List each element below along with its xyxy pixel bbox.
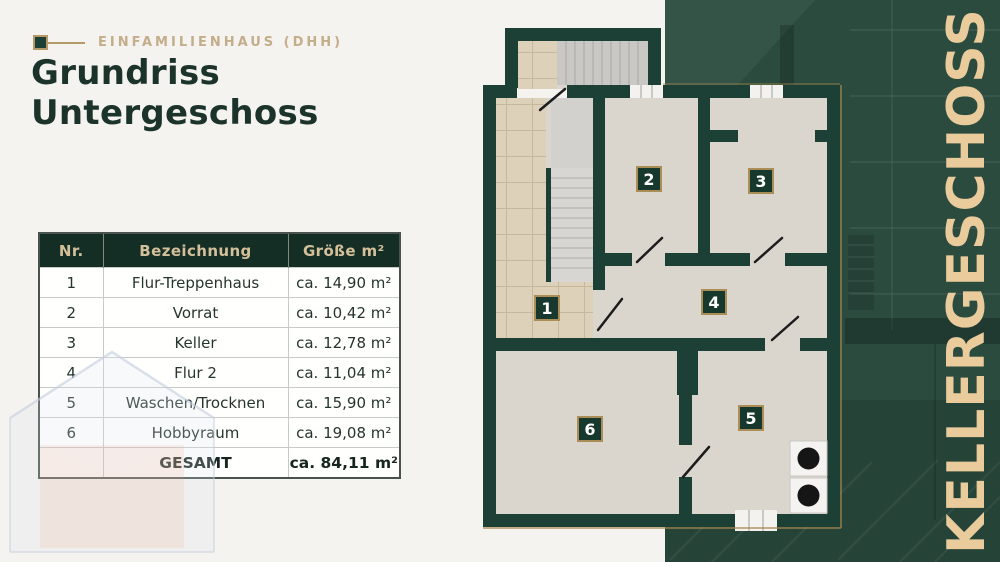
floor-plan	[480, 0, 1000, 562]
cell-nr: 5	[39, 388, 103, 418]
cell-name: Waschen/Trocknen	[103, 388, 288, 418]
table-row: 1 Flur-Treppenhaus ca. 14,90 m²	[39, 268, 400, 298]
slide: EINFAMILIENHAUS (DHH) Grundriss Unterges…	[0, 0, 1000, 562]
total-value: ca. 84,11 m²	[288, 448, 400, 479]
cell-name: Hobbyraum	[103, 418, 288, 448]
table-header-row: Nr. Bezeichnung Größe m²	[39, 233, 400, 268]
cell-nr: 1	[39, 268, 103, 298]
cell-nr-empty	[39, 448, 103, 479]
total-label: GESAMT	[103, 448, 288, 479]
col-header-size: Größe m²	[288, 233, 400, 268]
room-table: Nr. Bezeichnung Größe m² 1 Flur-Treppenh…	[38, 232, 401, 479]
room-badge-1: 1	[534, 295, 560, 321]
table-row: 3 Keller ca. 12,78 m²	[39, 328, 400, 358]
cell-name: Keller	[103, 328, 288, 358]
floor-surfaces	[496, 41, 827, 514]
cell-size: ca. 19,08 m²	[288, 418, 400, 448]
eyebrow-label: EINFAMILIENHAUS (DHH)	[98, 35, 343, 50]
cell-nr: 4	[39, 358, 103, 388]
cell-size: ca. 10,42 m²	[288, 298, 400, 328]
cell-nr: 3	[39, 328, 103, 358]
table-row: 5 Waschen/Trocknen ca. 15,90 m²	[39, 388, 400, 418]
cell-size: ca. 12,78 m²	[288, 328, 400, 358]
cell-nr: 2	[39, 298, 103, 328]
cell-nr: 6	[39, 418, 103, 448]
room-badge-6: 6	[577, 416, 603, 442]
cell-size: ca. 11,04 m²	[288, 358, 400, 388]
page-title: Grundriss Untergeschoss	[31, 54, 319, 134]
cell-size: ca. 15,90 m²	[288, 388, 400, 418]
room-badge-4: 4	[701, 289, 727, 315]
eyebrow: EINFAMILIENHAUS (DHH)	[33, 35, 343, 50]
page-title-line2: Untergeschoss	[31, 94, 319, 134]
table-row: 6 Hobbyraum ca. 19,08 m²	[39, 418, 400, 448]
table-row: 4 Flur 2 ca. 11,04 m²	[39, 358, 400, 388]
room-badge-3: 3	[748, 168, 774, 194]
col-header-name: Bezeichnung	[103, 233, 288, 268]
marker-line	[48, 42, 85, 44]
floor-plan-drawing	[480, 0, 1000, 562]
cell-size: ca. 14,90 m²	[288, 268, 400, 298]
cell-name: Vorrat	[103, 298, 288, 328]
col-header-nr: Nr.	[39, 233, 103, 268]
table-row: 2 Vorrat ca. 10,42 m²	[39, 298, 400, 328]
room-badge-5: 5	[738, 405, 764, 431]
room-badge-2: 2	[636, 166, 662, 192]
table-total-row: GESAMT ca. 84,11 m²	[39, 448, 400, 479]
page-title-line1: Grundriss	[31, 54, 319, 94]
cell-name: Flur 2	[103, 358, 288, 388]
cell-name: Flur-Treppenhaus	[103, 268, 288, 298]
square-marker-icon	[33, 35, 48, 50]
